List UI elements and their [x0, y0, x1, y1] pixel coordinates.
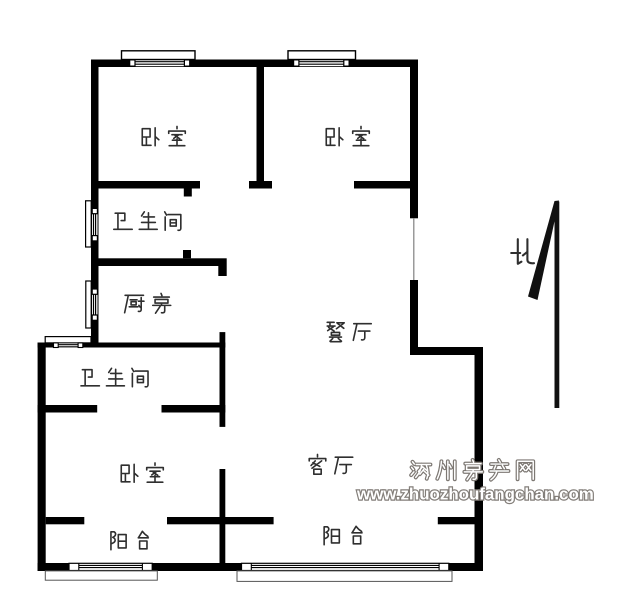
svg-text:www.zhuozhoufangchan.com: www.zhuozhoufangchan.com	[356, 485, 594, 504]
